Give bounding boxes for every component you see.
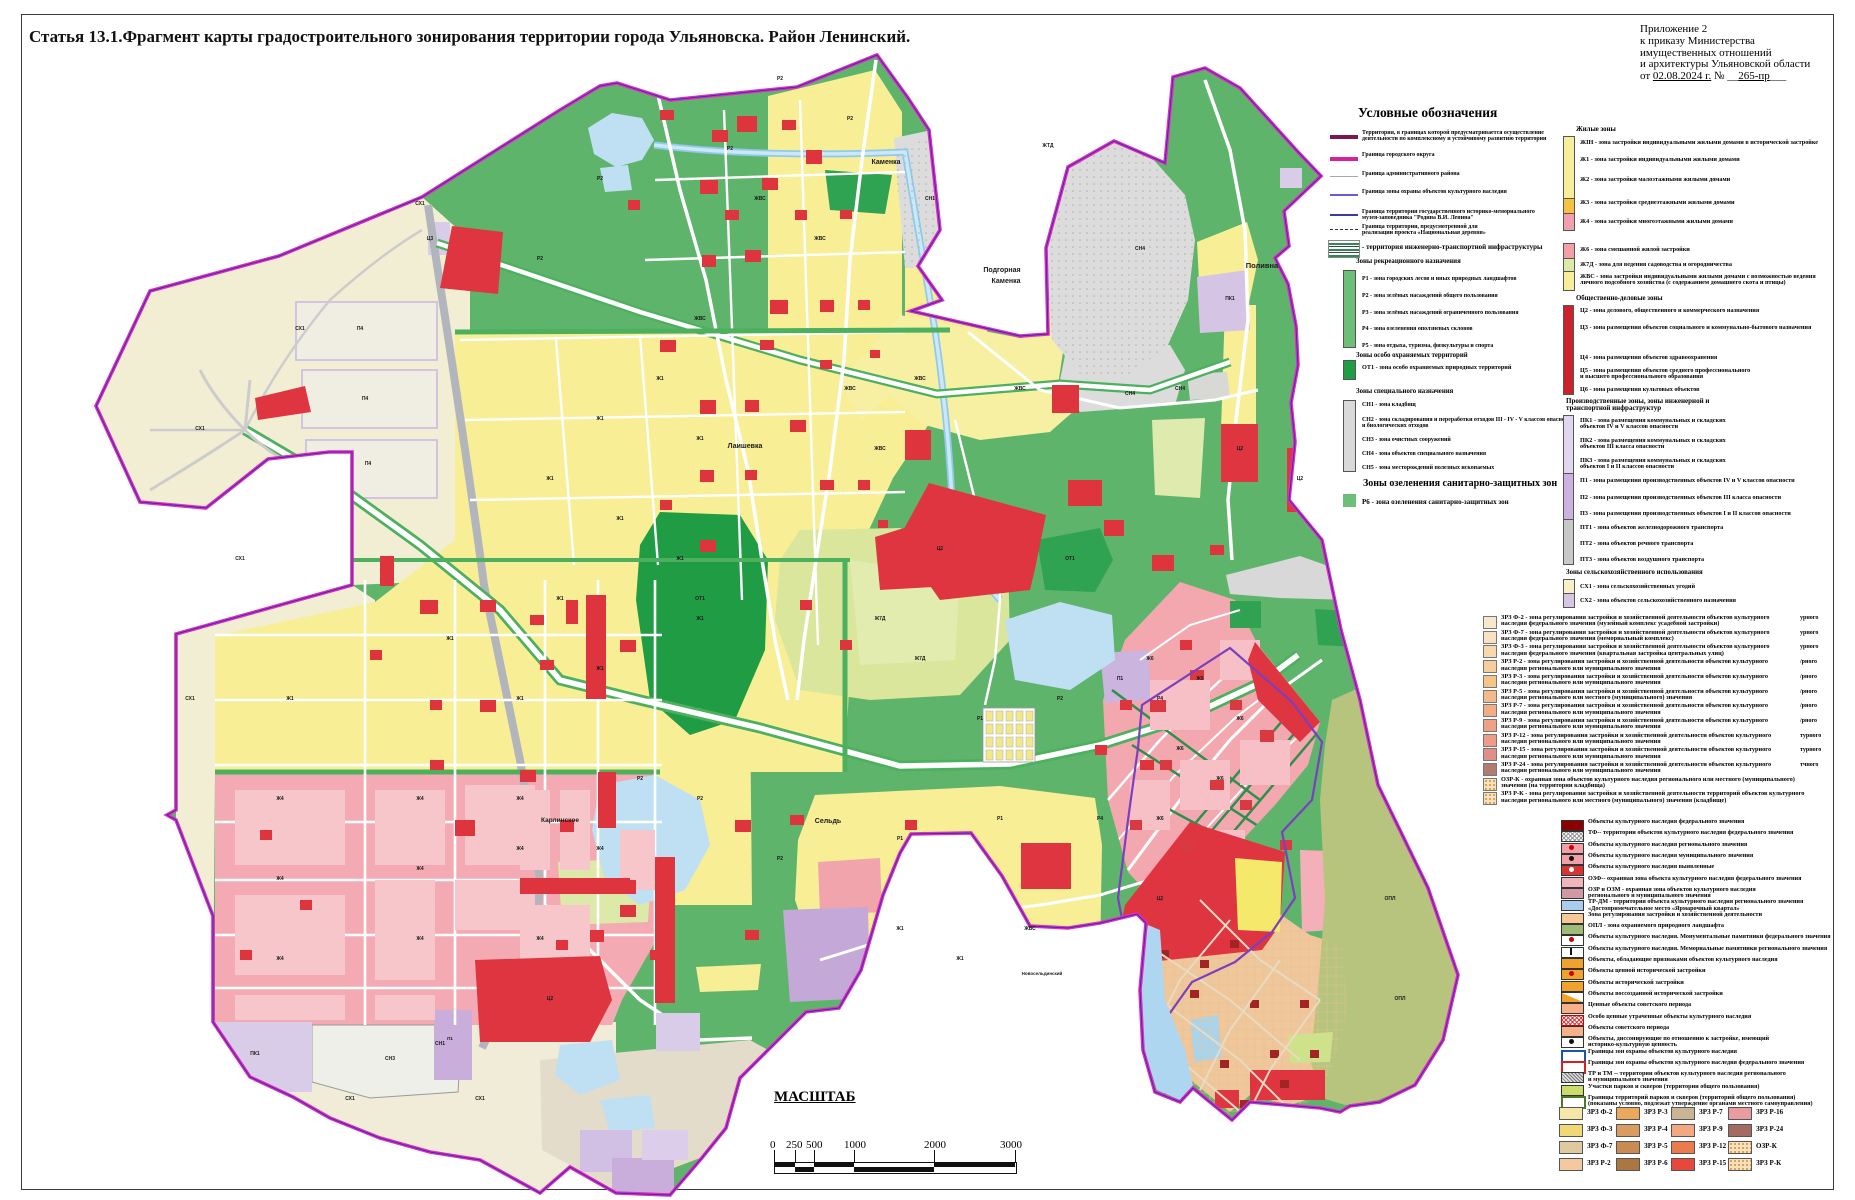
svg-text:Ж4: Ж4 <box>515 846 524 852</box>
svg-text:Ж4: Ж4 <box>415 796 424 802</box>
svg-text:СХ1: СХ1 <box>185 696 195 702</box>
svg-text:Лаишевка: Лаишевка <box>728 443 763 450</box>
svg-text:ОТ1: ОТ1 <box>1065 556 1075 562</box>
svg-text:Ж1: Ж1 <box>675 556 684 562</box>
svg-text:Сельдь: Сельдь <box>815 818 842 825</box>
svg-text:Ж6: Ж6 <box>1195 676 1204 682</box>
svg-text:Каменка: Каменка <box>872 159 901 166</box>
svg-text:Р4: Р4 <box>1097 816 1103 822</box>
svg-text:СН1: СН1 <box>925 196 935 202</box>
svg-text:Ж1: Ж1 <box>955 956 964 962</box>
svg-text:Карлинское: Карлинское <box>541 817 579 824</box>
svg-text:СХ1: СХ1 <box>415 201 425 207</box>
svg-text:ЖВС: ЖВС <box>753 196 766 202</box>
svg-text:Ж1: Ж1 <box>545 476 554 482</box>
svg-text:Ж7Д: Ж7Д <box>914 656 926 662</box>
svg-text:Ж1: Ж1 <box>285 696 294 702</box>
svg-text:СН1: СН1 <box>435 1041 445 1047</box>
svg-text:Ж6: Ж6 <box>1155 816 1164 822</box>
svg-text:Ц2: Ц2 <box>547 996 554 1002</box>
svg-text:ОТ1: ОТ1 <box>695 596 705 602</box>
svg-text:Ж1: Ж1 <box>595 416 604 422</box>
svg-text:Ж4: Ж4 <box>275 956 284 962</box>
svg-text:П1: П1 <box>1117 676 1124 682</box>
svg-text:Ц3: Ц3 <box>427 236 434 242</box>
svg-text:ПК1: ПК1 <box>250 1051 260 1057</box>
svg-text:Р1: Р1 <box>977 716 983 722</box>
svg-text:Ж1: Ж1 <box>695 436 704 442</box>
svg-text:ОПЛ: ОПЛ <box>1395 996 1406 1002</box>
svg-text:Ж4: Ж4 <box>535 936 544 942</box>
svg-text:Новосельдинский: Новосельдинский <box>1022 970 1063 976</box>
svg-text:Каменка: Каменка <box>992 278 1021 285</box>
svg-text:Ж6: Ж6 <box>1175 746 1184 752</box>
svg-text:Ж1: Ж1 <box>595 666 604 672</box>
svg-text:Р2: Р2 <box>637 776 643 782</box>
svg-text:СХ1: СХ1 <box>295 326 305 332</box>
svg-text:Р2: Р2 <box>777 856 783 862</box>
svg-text:Р1: Р1 <box>897 836 903 842</box>
svg-text:Ж4: Ж4 <box>595 846 604 852</box>
svg-text:Р2: Р2 <box>1057 696 1063 702</box>
svg-text:Р2: Р2 <box>697 796 703 802</box>
svg-text:Ж6: Ж6 <box>1235 716 1244 722</box>
svg-text:Р1: Р1 <box>997 816 1003 822</box>
svg-text:Ж4: Ж4 <box>275 796 284 802</box>
svg-text:ОПЛ: ОПЛ <box>1385 896 1396 902</box>
svg-text:Р2: Р2 <box>777 76 783 82</box>
svg-text:ЖВС: ЖВС <box>913 376 926 382</box>
svg-text:Ж4: Ж4 <box>415 936 424 942</box>
svg-text:СХ1: СХ1 <box>195 426 205 432</box>
svg-text:ПК1: ПК1 <box>1225 296 1235 302</box>
svg-text:Р4: Р4 <box>1157 696 1163 702</box>
svg-text:Р2: Р2 <box>727 146 733 152</box>
svg-text:Ж4: Ж4 <box>415 866 424 872</box>
svg-text:СН4: СН4 <box>1125 391 1135 397</box>
svg-text:Ж1: Ж1 <box>695 616 704 622</box>
svg-text:Ж1: Ж1 <box>655 376 664 382</box>
svg-text:Ж4: Ж4 <box>275 876 284 882</box>
svg-text:Ж1: Ж1 <box>555 596 564 602</box>
svg-text:Ж6: Ж6 <box>1215 776 1224 782</box>
svg-text:ЖВС: ЖВС <box>1023 926 1036 932</box>
svg-text:СХ1: СХ1 <box>235 556 245 562</box>
svg-text:П4: П4 <box>357 326 364 332</box>
svg-text:Ж1: Ж1 <box>515 696 524 702</box>
svg-text:Ж1: Ж1 <box>615 516 624 522</box>
svg-text:Ж1: Ж1 <box>895 926 904 932</box>
svg-text:Р2: Р2 <box>847 116 853 122</box>
svg-text:Ц2: Ц2 <box>937 546 944 552</box>
svg-text:СН4: СН4 <box>1135 246 1145 252</box>
svg-text:ЖТД: ЖТД <box>1041 143 1054 149</box>
svg-text:СН3: СН3 <box>385 1056 395 1062</box>
svg-text:Ж4: Ж4 <box>515 796 524 802</box>
svg-text:Ц2: Ц2 <box>1297 476 1304 482</box>
svg-text:П4: П4 <box>365 461 372 467</box>
svg-text:Ц2: Ц2 <box>1157 896 1164 902</box>
svg-text:П1: П1 <box>447 1036 453 1041</box>
svg-text:СХ1: СХ1 <box>345 1096 355 1102</box>
svg-text:Подгорная: Подгорная <box>983 267 1020 274</box>
svg-text:СХ1: СХ1 <box>475 1096 485 1102</box>
svg-text:Р2: Р2 <box>537 256 543 262</box>
svg-text:Ж6: Ж6 <box>1145 656 1154 662</box>
svg-text:ЖВС: ЖВС <box>693 316 706 322</box>
svg-text:ЖВС: ЖВС <box>873 446 886 452</box>
svg-text:Ж1: Ж1 <box>445 636 454 642</box>
svg-text:ЖВС: ЖВС <box>813 236 826 242</box>
svg-text:ЖВС: ЖВС <box>1013 386 1026 392</box>
svg-text:Ж7Д: Ж7Д <box>874 616 886 622</box>
svg-text:ЖВС: ЖВС <box>843 386 856 392</box>
svg-text:Ц2: Ц2 <box>1237 446 1244 452</box>
svg-text:П4: П4 <box>362 396 369 402</box>
svg-text:Р2: Р2 <box>597 176 603 182</box>
svg-text:Поливна: Поливна <box>1246 261 1279 270</box>
svg-text:СН4: СН4 <box>1175 386 1185 392</box>
